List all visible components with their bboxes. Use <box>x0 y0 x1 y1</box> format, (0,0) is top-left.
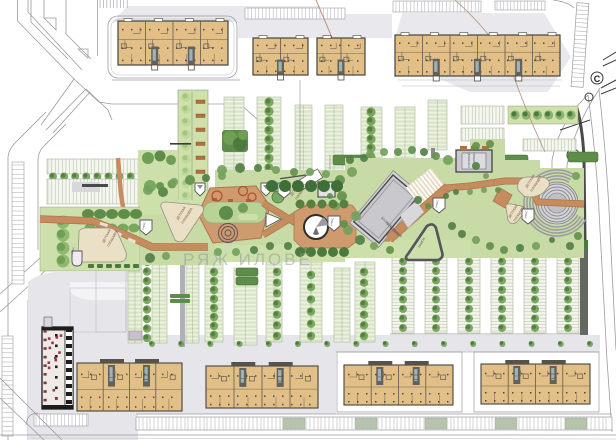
svg-text:ТОРГОВЫЙ: ТОРГОВЫЙ <box>467 152 471 168</box>
svg-text:C: C <box>594 74 601 84</box>
svg-text:РЯЖ ИЛОВЕ: РЯЖ ИЛОВЕ <box>183 250 313 269</box>
